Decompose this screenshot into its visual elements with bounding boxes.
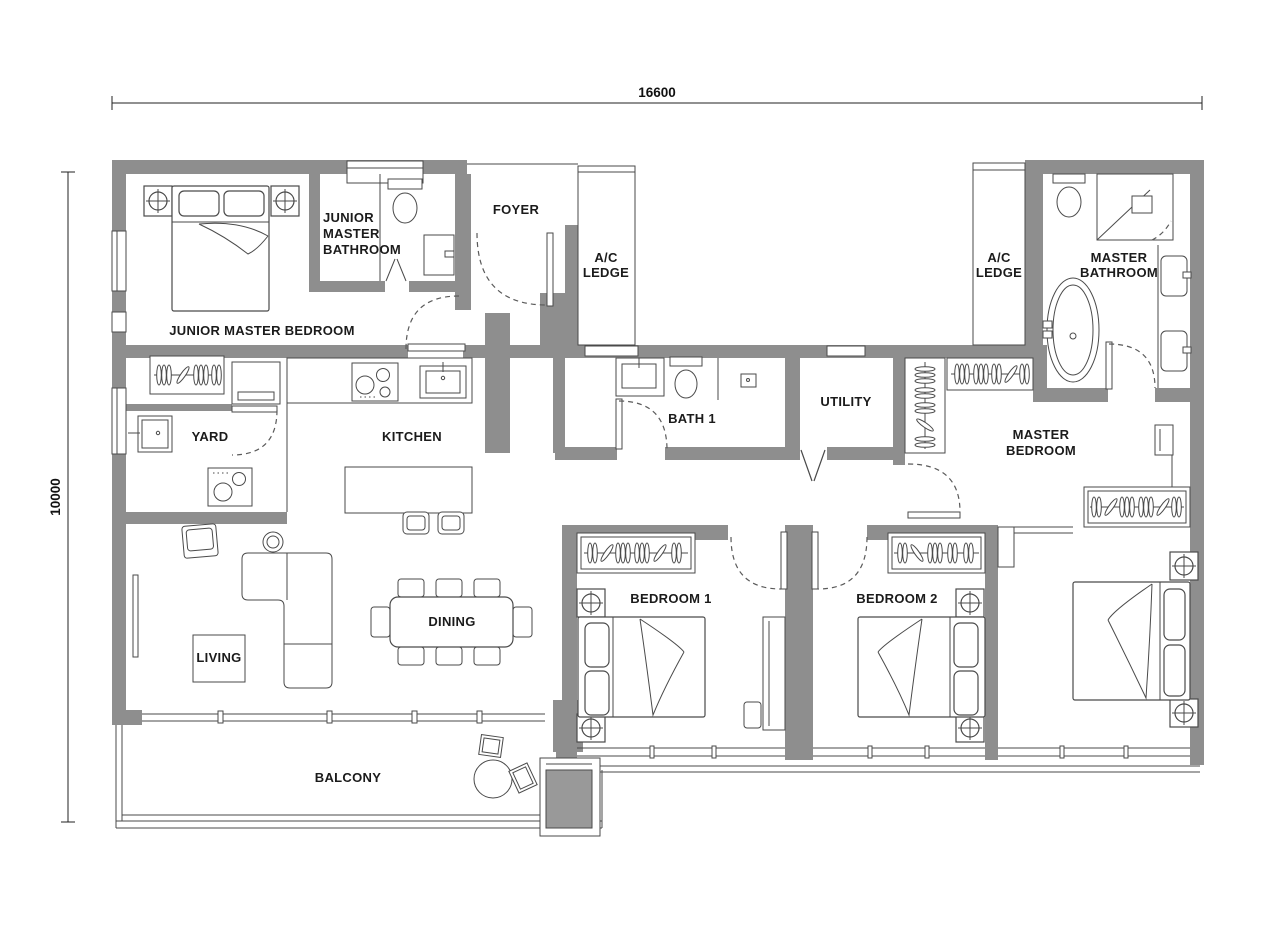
label-junior-master-bathroom-3: BATHROOM bbox=[323, 242, 401, 257]
label-kitchen: KITCHEN bbox=[382, 429, 442, 444]
dimension-top: 16600 bbox=[112, 85, 1202, 110]
label-master-bathroom-2: BATHROOM bbox=[1080, 265, 1158, 280]
master-bedroom-furniture bbox=[998, 425, 1198, 727]
label-dining: DINING bbox=[428, 614, 475, 629]
bath1-fixtures bbox=[616, 357, 756, 450]
label-junior-master-bathroom-1: JUNIOR bbox=[323, 210, 374, 225]
floor-plan: 16600 10000 bbox=[0, 0, 1273, 925]
junior-master-bed bbox=[144, 186, 299, 311]
master-bedroom-door bbox=[908, 464, 960, 518]
label-bedroom-2: BEDROOM 2 bbox=[856, 591, 937, 606]
label-ac-ledge-left-2: LEDGE bbox=[583, 265, 629, 280]
label-bedroom-1: BEDROOM 1 bbox=[630, 591, 711, 606]
yard-cooktop bbox=[208, 468, 252, 506]
label-master-bathroom-1: MASTER bbox=[1091, 250, 1148, 265]
yard-wardrobe bbox=[150, 356, 224, 394]
yard-door bbox=[232, 406, 277, 455]
label-yard: YARD bbox=[192, 429, 229, 444]
master-bathroom-fixtures bbox=[1043, 174, 1191, 389]
kitchen-island bbox=[345, 467, 472, 534]
dimension-left: 10000 bbox=[48, 172, 75, 822]
dimension-left-value: 10000 bbox=[48, 478, 63, 516]
bedroom2-furniture bbox=[858, 533, 985, 742]
bedroom2-door bbox=[812, 532, 867, 589]
bedroom1-door bbox=[731, 532, 787, 589]
label-foyer: FOYER bbox=[493, 202, 540, 217]
label-balcony: BALCONY bbox=[315, 770, 381, 785]
dimension-top-value: 16600 bbox=[638, 85, 676, 100]
label-bath-1: BATH 1 bbox=[668, 411, 716, 426]
bedroom1-furniture bbox=[577, 533, 785, 742]
junior-master-bathroom-fixtures bbox=[380, 174, 454, 281]
utility-bifold-door bbox=[801, 450, 825, 481]
label-ac-ledge-left-1: A/C bbox=[594, 250, 618, 265]
label-living: LIVING bbox=[196, 650, 241, 665]
label-junior-master-bathroom-2: MASTER bbox=[323, 226, 380, 241]
label-ac-ledge-right-1: A/C bbox=[987, 250, 1011, 265]
label-master-bedroom-2: BEDROOM bbox=[1006, 443, 1076, 458]
label-junior-master-bedroom: JUNIOR MASTER BEDROOM bbox=[169, 323, 354, 338]
yard-sink bbox=[128, 416, 172, 452]
label-utility: UTILITY bbox=[820, 394, 871, 409]
label-master-bedroom-1: MASTER bbox=[1013, 427, 1070, 442]
yard-washer bbox=[232, 362, 280, 404]
label-ac-ledge-right-2: LEDGE bbox=[976, 265, 1022, 280]
bedroom-windows bbox=[577, 746, 1200, 772]
floor-plan-canvas: 16600 10000 bbox=[0, 0, 1273, 925]
